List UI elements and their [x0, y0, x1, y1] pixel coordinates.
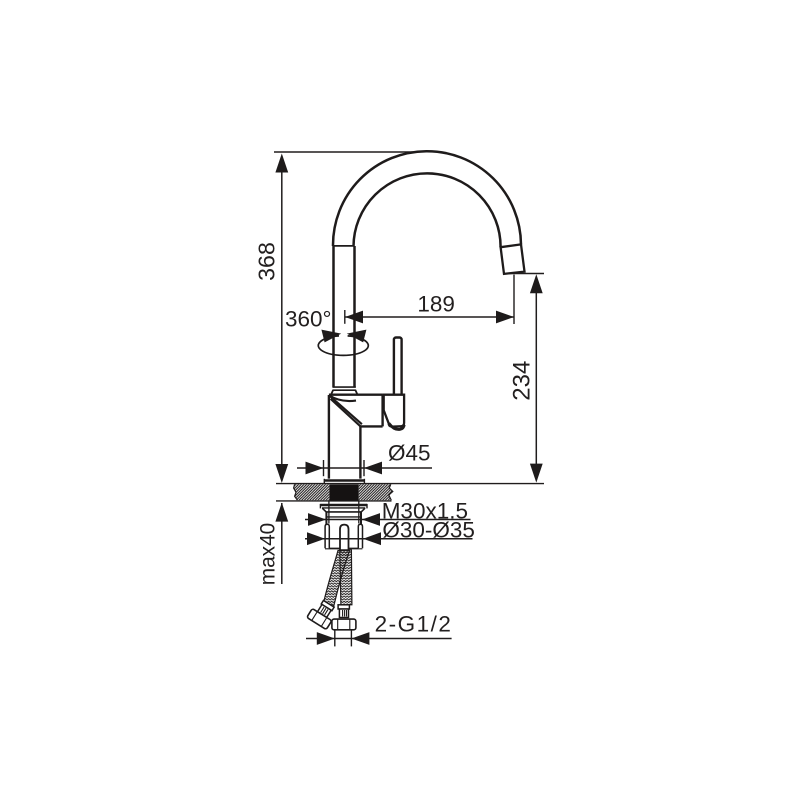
svg-text:360°: 360° — [285, 307, 332, 332]
svg-text:234: 234 — [509, 361, 536, 401]
svg-text:Ø45: Ø45 — [388, 440, 431, 465]
svg-text:max40: max40 — [257, 523, 280, 585]
svg-text:Ø30-Ø35: Ø30-Ø35 — [382, 517, 475, 542]
svg-text:368: 368 — [254, 242, 280, 281]
svg-text:2-G1/2: 2-G1/2 — [375, 612, 453, 637]
svg-text:189: 189 — [417, 292, 455, 317]
